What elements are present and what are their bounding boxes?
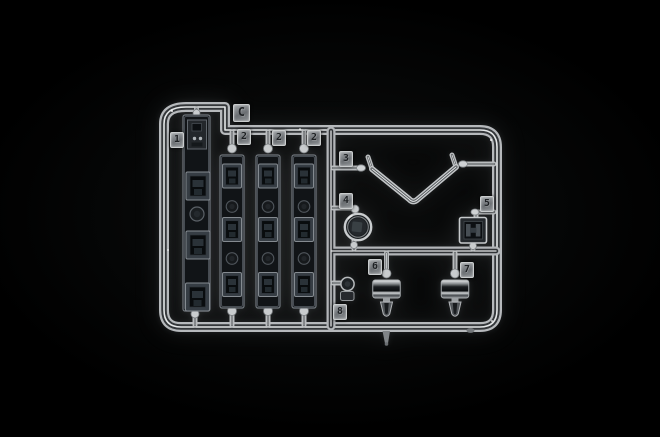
part-2-periscope-strip-c: [292, 155, 316, 308]
part-number-tab-4: 4: [339, 193, 353, 209]
part-number-tab-2c: 2: [307, 130, 321, 146]
part-number-tab-5: 5: [480, 196, 494, 212]
sprue-photo: [0, 0, 660, 437]
part-number-tab-3: 3: [339, 151, 353, 167]
photo-canvas: C 1 2 2 2 3 4 5 6 7 8: [0, 0, 660, 437]
part-2-periscope-strip-b: [256, 155, 280, 308]
part-number-tab-7: 7: [460, 262, 474, 278]
part-number-tab-6: 6: [368, 259, 382, 275]
part-8-small-knob: [341, 277, 355, 300]
part-number-tab-8: 8: [333, 304, 347, 320]
part-number-tab-1: 1: [170, 132, 184, 148]
sprue-letter-tab: C: [233, 104, 250, 122]
part-6-light-drum: [373, 280, 401, 316]
part-5-square-lens: [460, 218, 487, 244]
part-number-tab-2a: 2: [237, 129, 251, 145]
sprue-c: [164, 107, 497, 346]
part-4-round-lens: [345, 214, 371, 240]
part-2-periscope-strip-a: [220, 155, 244, 308]
part-number-tab-2b: 2: [272, 130, 286, 146]
part-7-light-drum: [441, 280, 469, 316]
part-1-periscope-strip: [183, 115, 210, 311]
part-3-v-frame: [372, 167, 456, 201]
